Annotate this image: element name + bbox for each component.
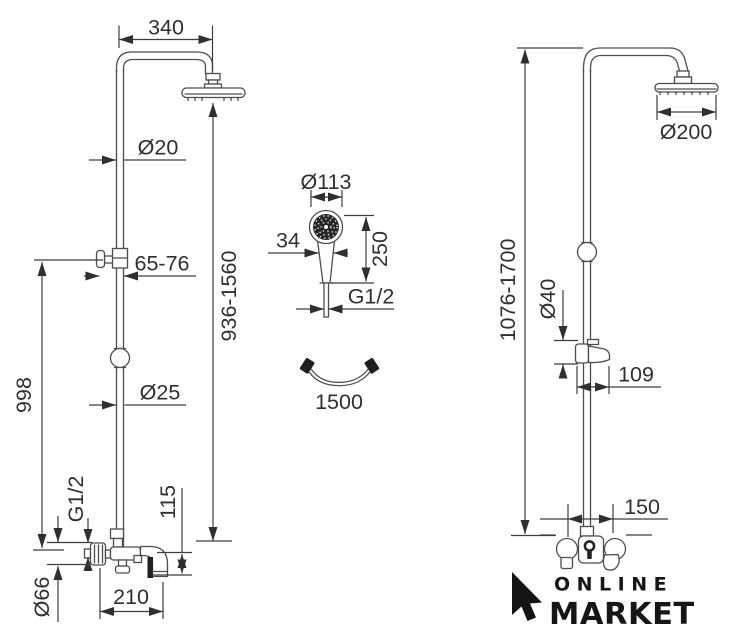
- left-mixer-and-spout: [85, 529, 168, 578]
- logo-line2: MARKET: [549, 597, 695, 632]
- dim-right-holder-depth: 109: [577, 363, 661, 395]
- dim-340-label: 340: [148, 16, 184, 40]
- left-wall-bracket: [97, 249, 128, 269]
- hand-shower-handle: [318, 241, 335, 284]
- dim-210-label: 210: [113, 585, 149, 609]
- right-shower-head: [655, 71, 718, 95]
- dim-936-1560-label: 936-1560: [217, 251, 241, 342]
- dim-o113-label: Ø113: [301, 170, 352, 194]
- right-ball-joint: [578, 243, 597, 262]
- online-market-logo: ONLINE MARKET: [512, 572, 695, 632]
- hand-shower-thread: [320, 283, 333, 317]
- dim-left-escutcheon-diameter: Ø66: [30, 516, 92, 622]
- dim-1500-label: 1500: [315, 390, 363, 414]
- dim-o25-label: Ø25: [140, 381, 181, 405]
- dim-right-connection-spacing: 150: [540, 495, 668, 537]
- dim-hand-shower-thread: G1/2: [296, 285, 394, 310]
- logo-line1: ONLINE: [554, 574, 673, 596]
- dim-998-label: 998: [12, 377, 36, 413]
- dim-115-label: 115: [156, 485, 180, 519]
- right-mixer-lever: [603, 555, 619, 571]
- dim-right-head-diameter: Ø200: [657, 95, 716, 144]
- dim-65-76-label: 65-76: [135, 252, 190, 276]
- hand-shower-head: [310, 211, 343, 244]
- dim-left-arm-width: 340: [119, 16, 213, 71]
- cursor-arrow-icon: [512, 572, 542, 621]
- dim-left-pipe-top-diameter: Ø20: [89, 136, 186, 161]
- dim-250-label: 250: [368, 231, 392, 267]
- dim-g12-hand-label: G1/2: [348, 285, 395, 309]
- shower-set-dimension-diagram: 340 Ø20 65-76 936-1560 998: [0, 0, 738, 640]
- left-shower-column-drawing: 340 Ø20 65-76 936-1560 998: [12, 16, 245, 623]
- shower-hose-drawing: 1500: [299, 357, 379, 414]
- dim-o66-label: Ø66: [30, 577, 54, 618]
- left-ball-joint: [111, 349, 130, 368]
- hand-shower-drawing: Ø113 34 250 G1/2: [268, 170, 394, 317]
- dim-o200-label: Ø200: [660, 120, 713, 144]
- dim-left-pipe-bottom-diameter: Ø25: [89, 381, 186, 406]
- dim-hand-shower-head-diameter: Ø113: [301, 170, 352, 207]
- dim-g12-left-label: G1/2: [64, 476, 88, 523]
- dim-o40-label: Ø40: [536, 279, 560, 320]
- right-shower-column-drawing: Ø200 1076-1700 Ø40 109: [496, 48, 718, 570]
- dim-left-column-height: 936-1560: [196, 103, 241, 541]
- left-riser-pipe: [117, 52, 213, 547]
- right-mixer: [557, 527, 626, 571]
- left-shower-head: [182, 74, 245, 101]
- technical-drawing-canvas: 340 Ø20 65-76 936-1560 998: [0, 0, 738, 640]
- dim-109-label: 109: [618, 363, 654, 387]
- dim-right-holder-diameter: Ø40: [536, 279, 578, 378]
- right-slider-holder: [576, 340, 610, 364]
- dim-34-label: 34: [276, 229, 300, 253]
- dim-150-label: 150: [624, 495, 660, 519]
- dim-1076-1700-label: 1076-1700: [496, 239, 520, 342]
- dim-o20-label: Ø20: [138, 136, 179, 160]
